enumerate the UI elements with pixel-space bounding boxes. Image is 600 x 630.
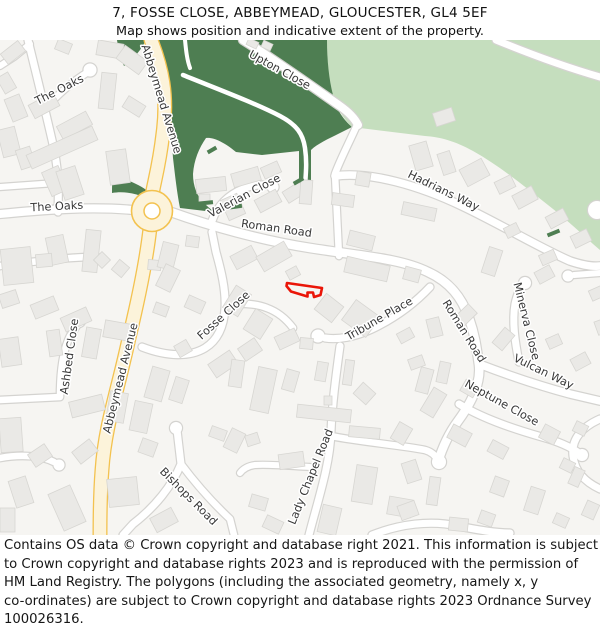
- footer-line: HM Land Registry. The polygons (includin…: [4, 574, 598, 593]
- culdesac: [432, 455, 446, 469]
- building: [0, 247, 34, 286]
- building: [98, 72, 117, 109]
- building: [331, 193, 354, 208]
- culdesac: [54, 460, 65, 471]
- building: [300, 337, 314, 349]
- footer-line: co-ordinates) are subject to Crown copyr…: [4, 593, 598, 612]
- building: [0, 417, 23, 452]
- culdesac: [84, 64, 97, 77]
- building: [35, 253, 52, 267]
- footer-line: Contains OS data © Crown copyright and d…: [4, 537, 598, 556]
- building: [324, 396, 332, 405]
- building: [195, 176, 226, 193]
- building: [106, 149, 131, 185]
- road: [574, 273, 600, 275]
- footer-line: to Crown copyright and database rights 2…: [4, 556, 598, 575]
- building: [0, 337, 22, 368]
- building: [355, 171, 371, 187]
- building: [299, 180, 313, 205]
- footer-line: 100026316.: [4, 611, 598, 630]
- building: [349, 426, 381, 440]
- property-address-title: 7, FOSSE CLOSE, ABBEYMEAD, GLOUCESTER, G…: [0, 0, 600, 21]
- building: [0, 508, 15, 532]
- building: [185, 235, 199, 248]
- building: [448, 517, 468, 532]
- roundabout-island: [144, 203, 160, 219]
- copyright-footer: Contains OS data © Crown copyright and d…: [4, 537, 598, 630]
- os-map: The OaksAbbeymead AvenueUpton CloseThe O…: [0, 40, 600, 535]
- culdesac: [576, 449, 588, 461]
- building: [278, 451, 305, 469]
- map-header: 7, FOSSE CLOSE, ABBEYMEAD, GLOUCESTER, G…: [0, 0, 600, 40]
- map-canvas: The OaksAbbeymead AvenueUpton CloseThe O…: [0, 40, 600, 535]
- culdesac: [170, 422, 182, 434]
- culdesac: [563, 271, 574, 282]
- map-subtitle: Map shows position and indicative extent…: [0, 24, 600, 39]
- building: [107, 477, 140, 508]
